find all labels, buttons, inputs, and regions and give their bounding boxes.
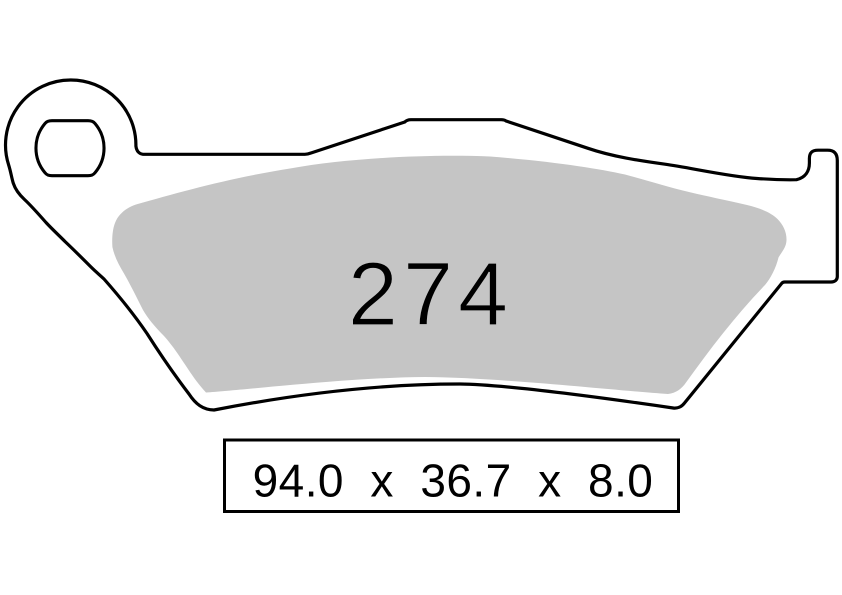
svg-text:94.0 x 36.7 x 8.0: 94.0 x 36.7 x 8.0 <box>253 455 654 507</box>
svg-text:274: 274 <box>348 245 513 345</box>
